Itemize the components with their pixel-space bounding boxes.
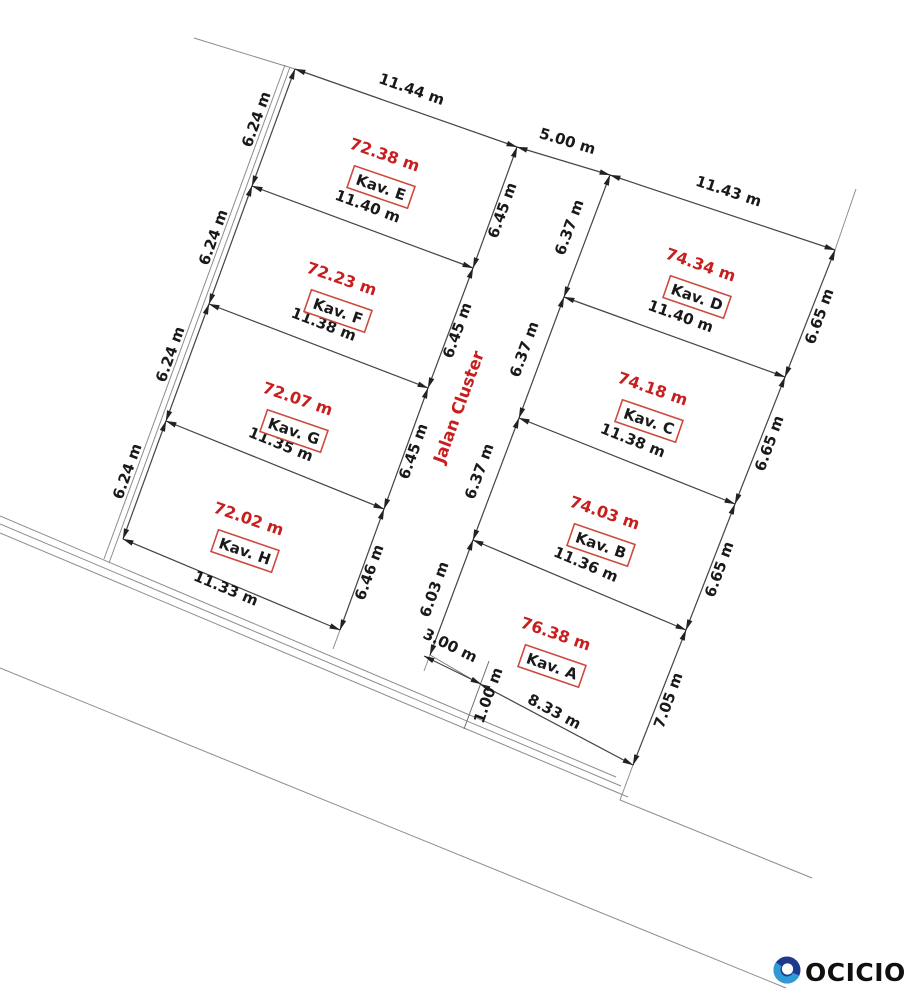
top-left-boundary-line xyxy=(194,38,295,69)
cluster-road-left-extension xyxy=(333,630,340,649)
plot-a-side-extension xyxy=(620,765,633,800)
dim-label: 11.43 m xyxy=(693,172,764,211)
dim-road-width xyxy=(517,147,610,175)
site-plan-page: 11.44 m 11.40 m 11.38 m 11.35 m 11.33 m … xyxy=(0,0,906,1000)
logo-text: OCICIO xyxy=(805,958,906,987)
site-plan-svg: 11.44 m 11.40 m 11.38 m 11.35 m 11.33 m … xyxy=(0,0,906,1000)
logo-mark-hole xyxy=(782,963,793,974)
top-right-boundary-line xyxy=(835,189,856,250)
ocicio-logo: OCICIO xyxy=(774,957,906,988)
plot-a-lower-boundary xyxy=(620,800,812,878)
plot-polygons xyxy=(123,69,835,765)
dim-label-road-width: 5.00 m xyxy=(537,124,598,158)
